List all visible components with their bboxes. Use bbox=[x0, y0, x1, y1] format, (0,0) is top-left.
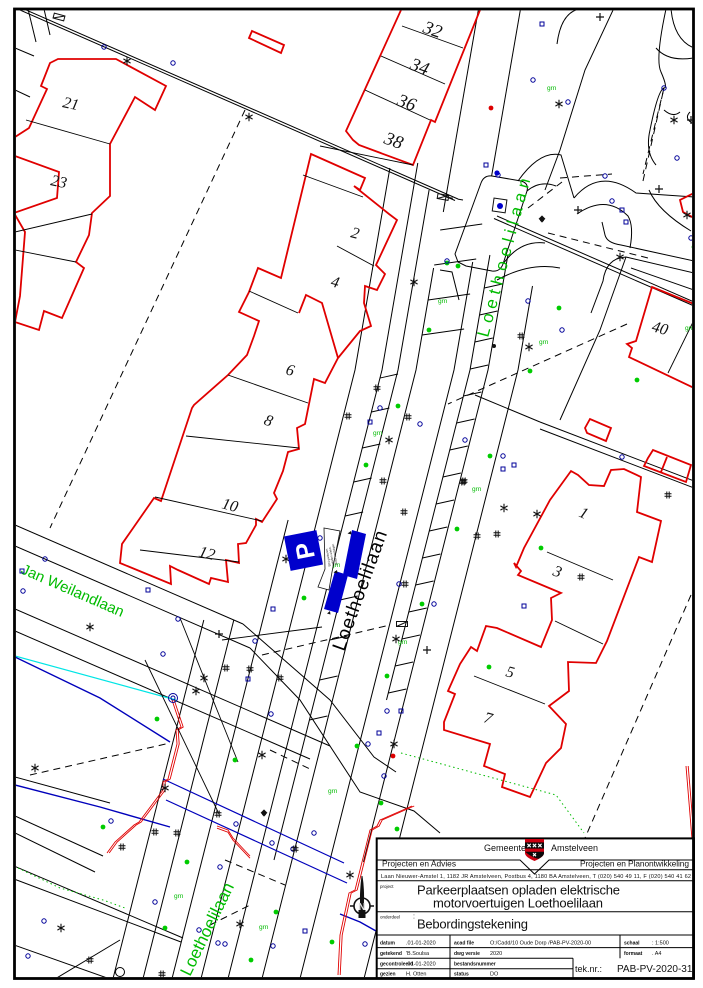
svg-text:'B.Soulsa: 'B.Soulsa bbox=[406, 951, 430, 957]
svg-text:.01-01-2020: .01-01-2020 bbox=[406, 962, 436, 968]
svg-text:getekend: getekend bbox=[380, 951, 402, 957]
svg-text:2020: 2020 bbox=[490, 951, 502, 957]
svg-text:schaal: schaal bbox=[624, 941, 640, 947]
svg-text:grn: grn bbox=[539, 339, 549, 346]
svg-text:Gemeente: Gemeente bbox=[484, 843, 526, 853]
svg-text:grn: grn bbox=[398, 639, 408, 646]
svg-text:grn: grn bbox=[373, 430, 383, 437]
svg-text:Laan Nieuwer-Amstel 1, 1182 JR: Laan Nieuwer-Amstel 1, 1182 JR Amstelvee… bbox=[381, 874, 691, 880]
svg-text:status: status bbox=[454, 972, 469, 978]
svg-text::: : bbox=[413, 914, 415, 921]
svg-text:. A4: . A4 bbox=[652, 951, 661, 957]
svg-text:gezien: gezien bbox=[380, 972, 396, 978]
svg-text:project: project bbox=[380, 884, 394, 889]
svg-text:Projecten en Advies: Projecten en Advies bbox=[382, 859, 456, 869]
svg-text:N: N bbox=[358, 902, 365, 913]
svg-text:bestandsnummer: bestandsnummer bbox=[454, 962, 496, 968]
svg-text:: 1:500: : 1:500 bbox=[652, 941, 669, 947]
svg-text:grn: grn bbox=[472, 486, 482, 493]
svg-text:grn: grn bbox=[438, 298, 448, 305]
svg-text:grn: grn bbox=[547, 85, 557, 92]
svg-text:H. Otten: H. Otten bbox=[406, 972, 426, 978]
svg-text:dwg versie: dwg versie bbox=[454, 951, 480, 957]
svg-text:grn: grn bbox=[174, 893, 184, 900]
svg-text:tek.nr.:: tek.nr.: bbox=[575, 964, 602, 974]
svg-text:O:/Cadd/10 Oude Dorp /PAB-PV-2: O:/Cadd/10 Oude Dorp /PAB-PV-2020-00 bbox=[490, 941, 591, 947]
svg-text:datum: datum bbox=[380, 941, 396, 947]
svg-text:grn: grn bbox=[259, 924, 269, 931]
svg-text:Amstelveen: Amstelveen bbox=[551, 843, 598, 853]
svg-text:Bebordingstekening: Bebordingstekening bbox=[417, 917, 528, 932]
svg-text:.01-01-2020: .01-01-2020 bbox=[406, 941, 436, 947]
svg-text:DO: DO bbox=[490, 972, 499, 978]
svg-text:onderdeel: onderdeel bbox=[380, 915, 400, 920]
svg-text:motorvoertuigen Loethoelilaan: motorvoertuigen Loethoelilaan bbox=[433, 896, 603, 911]
svg-text:acad file: acad file bbox=[454, 941, 474, 947]
svg-text:grn: grn bbox=[328, 788, 338, 795]
svg-text:PAB-PV-2020-31: PAB-PV-2020-31 bbox=[617, 964, 693, 975]
svg-text:formaat: formaat bbox=[624, 951, 643, 957]
svg-text:Projecten en Planontwikkeling: Projecten en Planontwikkeling bbox=[580, 859, 689, 869]
